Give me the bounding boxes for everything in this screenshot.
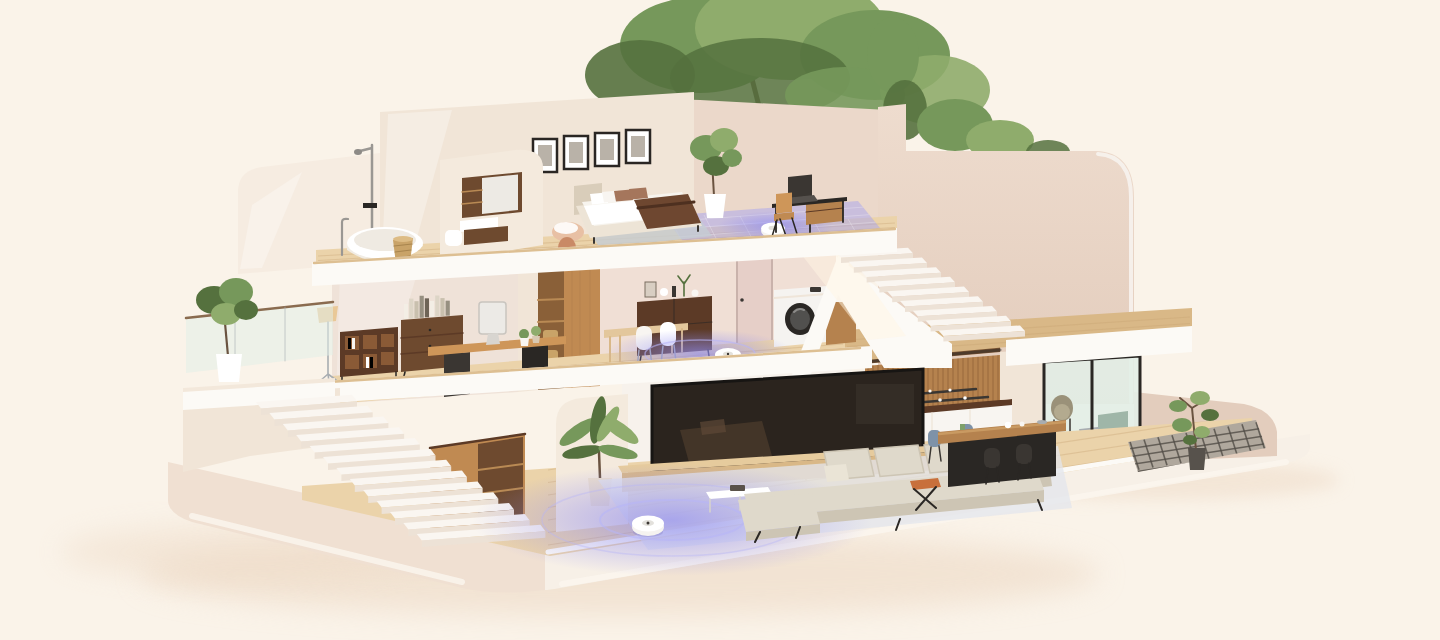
vanity-partition [440,150,543,262]
washer-display [810,287,821,292]
door-handle [740,298,744,302]
scene-canvas [0,0,1440,640]
robot-vacuum [632,516,664,537]
shower-shelf [363,203,377,208]
book-spine [446,301,450,316]
book-spine [425,298,429,317]
sofa-back-cushion [874,445,924,477]
picture-frame [626,130,650,163]
book-spine [409,299,413,319]
book-spine [435,296,439,317]
frame-art [600,139,614,160]
frame-art [569,142,583,163]
white-planter [704,194,726,218]
book-spine [420,296,424,318]
book-spine [440,298,444,316]
vanity-mirror-unit [462,172,522,218]
stacked-books [404,296,450,319]
white-planter [216,354,242,382]
book-spine [404,304,408,319]
brown-pillow [629,188,648,200]
plant-pot [1188,448,1206,470]
sofa-pillow [824,464,849,482]
bathroom [342,145,543,264]
toilet [445,230,462,246]
smart-home-3d-render [0,0,1440,640]
frame-art [631,136,645,157]
tray [730,485,745,491]
book-spine [414,301,418,318]
book-spine [430,301,434,317]
picture-frame [564,136,588,169]
picture-frame [595,133,619,166]
